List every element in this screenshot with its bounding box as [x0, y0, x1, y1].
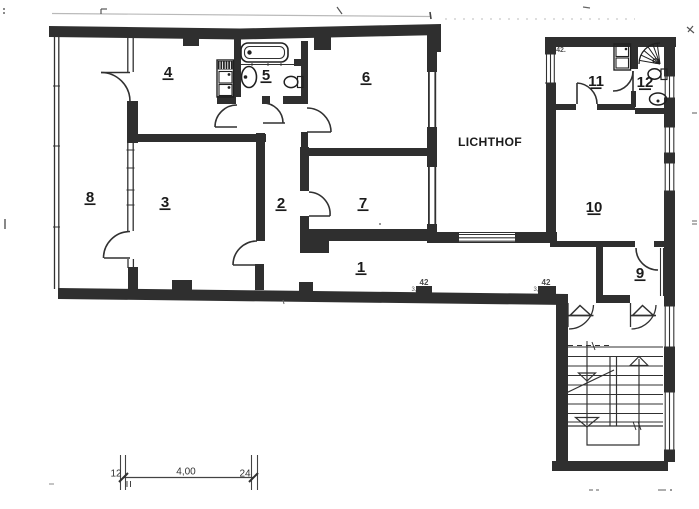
svg-text:3,: 3, [411, 287, 416, 293]
svg-text:4,00: 4,00 [176, 467, 196, 478]
svg-text:LICHTHOF: LICHTHOF [458, 135, 522, 149]
svg-text:42: 42 [420, 278, 429, 287]
svg-text:42.: 42. [556, 47, 566, 54]
svg-text:3,: 3, [533, 287, 538, 293]
svg-text:12: 12 [110, 469, 122, 480]
svg-text:42: 42 [542, 278, 551, 287]
svg-text:24: 24 [239, 469, 251, 480]
